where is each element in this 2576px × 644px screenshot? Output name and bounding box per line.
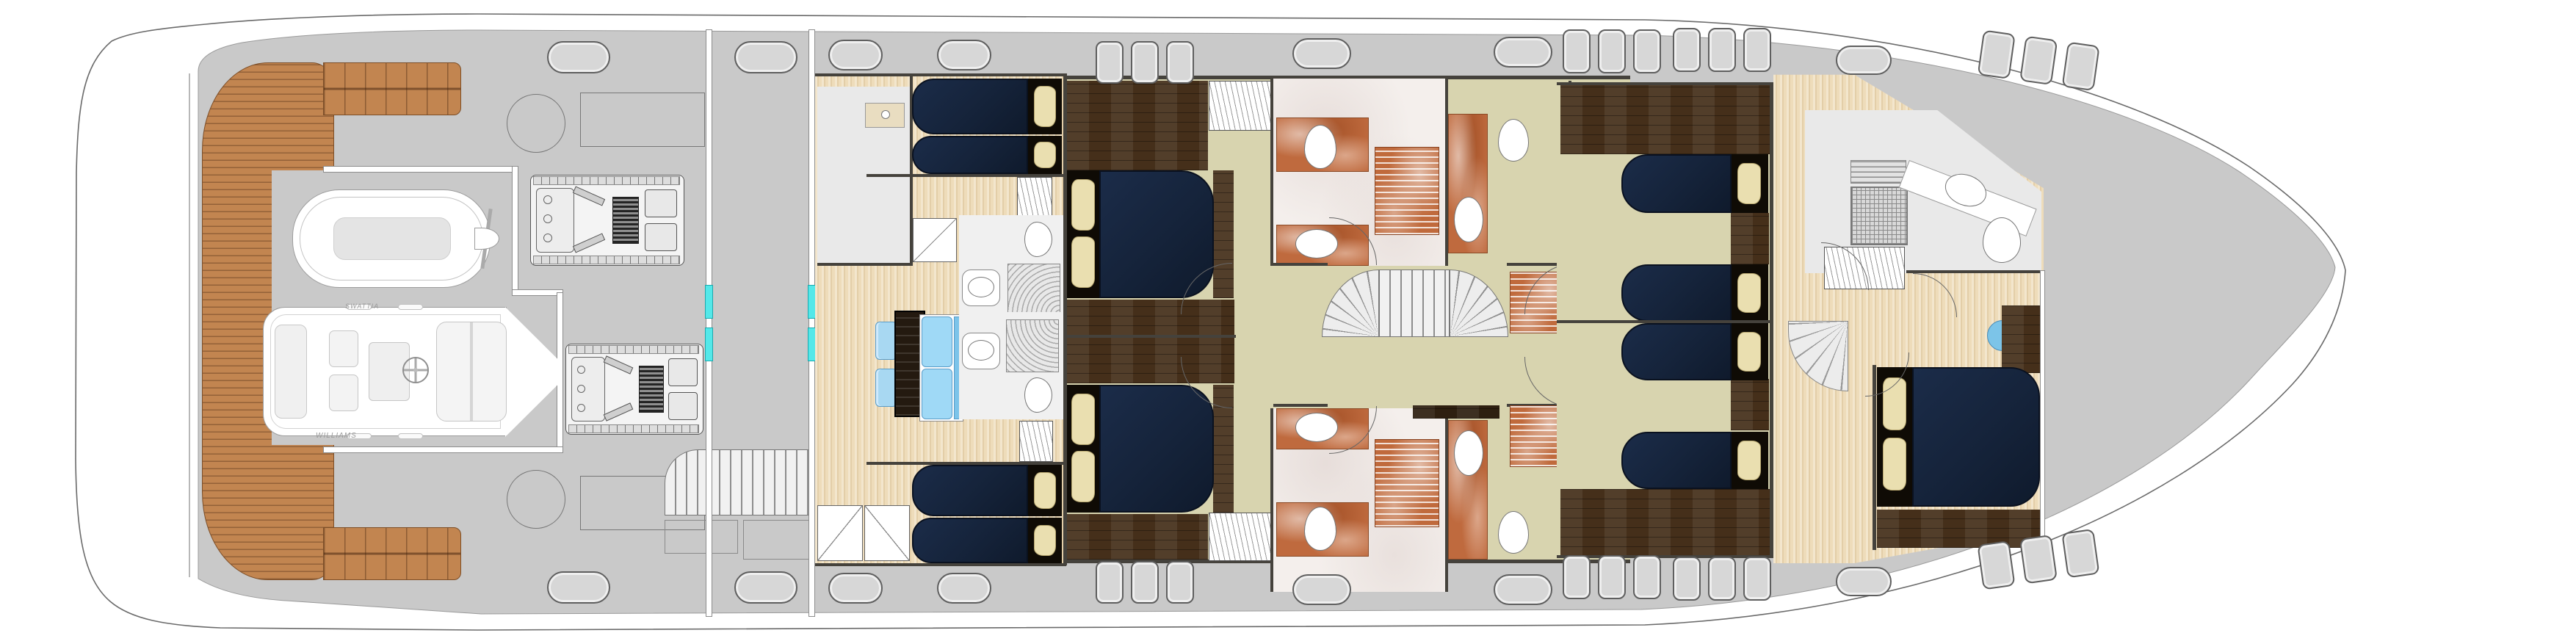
shower xyxy=(1375,439,1439,527)
tender-stern-bench xyxy=(275,325,307,419)
dark-floor xyxy=(1067,81,1208,170)
single-bed xyxy=(1621,432,1732,489)
toilet xyxy=(1024,377,1052,413)
crew-locker xyxy=(864,505,910,561)
hull-glazing-group xyxy=(1563,29,1661,73)
hull-glazing-group xyxy=(1563,555,1661,599)
bunk-bed xyxy=(912,465,1028,516)
cabin-divider xyxy=(1067,335,1236,338)
teak-wing-bottom xyxy=(323,527,461,580)
hull-window xyxy=(547,41,610,73)
single-bed xyxy=(1621,323,1732,380)
bow-shower xyxy=(1850,187,1908,245)
toilet xyxy=(1498,511,1529,554)
hull-window xyxy=(828,573,883,604)
laundry-wall2 xyxy=(817,263,913,266)
hull-window xyxy=(1836,46,1892,75)
hull-window xyxy=(937,40,991,70)
corridor-wall xyxy=(1273,404,1328,407)
engine-starboard xyxy=(565,344,703,435)
crew-shower-top xyxy=(913,218,957,262)
wall xyxy=(1906,270,2041,273)
hull-window xyxy=(1494,37,1552,68)
watertight-door-aft xyxy=(705,285,713,319)
bulkhead-aft xyxy=(706,29,712,617)
wardrobe xyxy=(1209,513,1272,561)
corridor-wall xyxy=(1273,263,1328,266)
hull-window xyxy=(1836,567,1892,596)
wardrobe xyxy=(1209,81,1272,131)
tender-top-label: SWATTIA xyxy=(345,303,379,310)
engine-gearbox xyxy=(612,197,639,244)
stair-landing xyxy=(1413,405,1499,419)
sink xyxy=(968,277,994,297)
sink xyxy=(1454,430,1483,476)
wall xyxy=(1445,79,1448,266)
hull-window xyxy=(1494,574,1552,605)
bunk-bed xyxy=(912,518,1028,563)
tender-steering-wheel xyxy=(402,357,429,383)
toilet xyxy=(1983,217,2021,263)
wall xyxy=(1270,408,1273,592)
dark-floor xyxy=(1560,489,1771,557)
hull-glazing-group xyxy=(1096,41,1194,84)
teak-wing-top xyxy=(323,62,461,115)
crew-locker xyxy=(817,505,863,561)
dark-floor xyxy=(1067,514,1208,560)
engine-gearbox xyxy=(639,366,664,413)
crew-wall-top xyxy=(815,73,1066,76)
tender-brand-label: WILLIAMS xyxy=(316,432,357,440)
bow-wall xyxy=(2040,270,2045,551)
bunk-bed xyxy=(912,136,1028,174)
wall xyxy=(1557,320,1771,323)
shower xyxy=(1375,147,1439,235)
yacht-deck-plan: SWATTIA WILLIAMS xyxy=(0,0,2576,644)
wall xyxy=(1445,408,1448,592)
hull-window xyxy=(734,41,797,73)
single-bed xyxy=(1621,264,1732,322)
hull-glazing-group xyxy=(1673,557,1771,601)
bunk-bed xyxy=(912,79,1028,134)
fuel-tank-top xyxy=(507,94,565,153)
hull-window xyxy=(937,573,991,604)
hull-window xyxy=(828,40,883,70)
fuel-tank-bottom xyxy=(507,470,565,529)
equipment-box-top xyxy=(580,93,705,147)
crew-mess xyxy=(872,308,963,426)
hull-window xyxy=(1292,38,1351,69)
tender-seat xyxy=(329,330,358,367)
mess-sofa xyxy=(919,314,963,422)
guest-cabin-port-aft xyxy=(1067,385,1236,513)
hull-window xyxy=(547,571,610,604)
hull-glazing-group xyxy=(1673,28,1771,72)
toilet xyxy=(1024,222,1052,257)
crew-cabin-top xyxy=(912,77,1066,174)
pillow xyxy=(1737,273,1761,313)
tender-seat xyxy=(329,375,358,411)
aft-staircase xyxy=(665,449,820,515)
sink xyxy=(968,340,994,361)
laundry-sink xyxy=(881,110,890,119)
bow-vanity-desk xyxy=(2002,305,2041,373)
pillow xyxy=(1737,441,1761,480)
toilet xyxy=(1304,125,1336,169)
hull-window xyxy=(734,571,797,604)
vent-locker xyxy=(1850,160,1906,184)
shower-mosaic xyxy=(1006,319,1059,372)
toilet xyxy=(1498,119,1529,162)
hull-window xyxy=(1292,574,1351,605)
crew-wc-bottom xyxy=(959,312,1063,419)
dark-floor xyxy=(1731,379,1769,430)
shower-mosaic xyxy=(1007,264,1060,315)
double-bed xyxy=(1912,367,2040,507)
bulkhead-engine-fwd xyxy=(808,29,815,617)
wall xyxy=(1270,79,1273,266)
watertight-door-aft2 xyxy=(705,328,713,361)
single-bed xyxy=(1621,154,1732,213)
twin-fwd-wall xyxy=(1770,82,1773,558)
dark-floor xyxy=(1731,213,1769,264)
crew-wardrobe-bottom xyxy=(1019,421,1053,462)
crew-wc-top xyxy=(959,215,1063,318)
main-staircase xyxy=(1322,269,1508,337)
sink xyxy=(1454,197,1483,242)
toilet xyxy=(1304,507,1336,551)
machinery-box xyxy=(665,520,738,554)
pillow xyxy=(1737,163,1761,204)
bow-cabin-bed xyxy=(1877,367,2041,508)
dark-floor xyxy=(1560,85,1771,154)
engine-port xyxy=(530,175,684,266)
crew-wardrobe-top xyxy=(1017,177,1052,217)
double-bed xyxy=(1099,385,1214,513)
wall xyxy=(1557,82,1771,85)
crew-cabin-bottom xyxy=(912,465,1066,563)
hull-glazing-group xyxy=(1096,561,1194,604)
pillow xyxy=(1737,332,1761,372)
crew-wall-bottom xyxy=(815,563,1066,566)
